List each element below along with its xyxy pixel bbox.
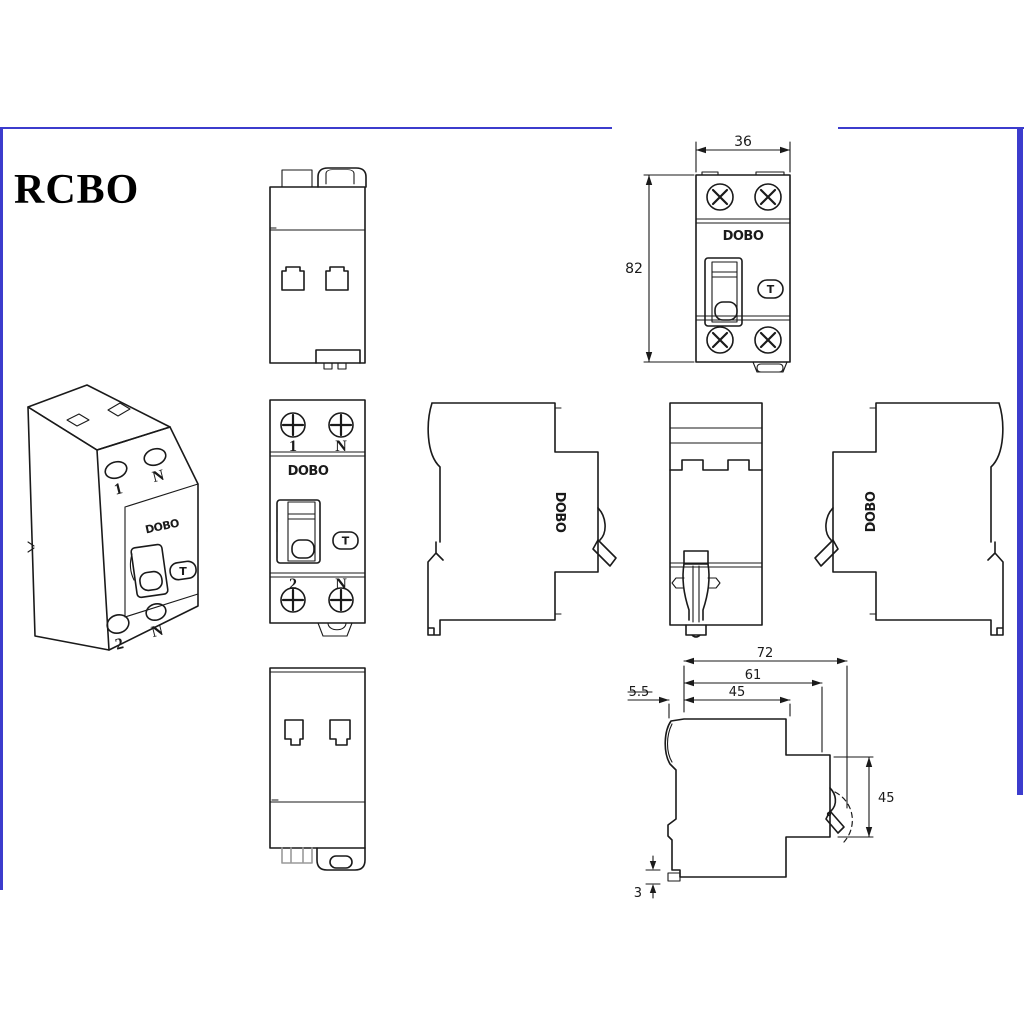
dim-body-depth: 61 — [745, 668, 762, 683]
side-profile — [428, 403, 598, 635]
test-button: T — [169, 560, 197, 580]
test-button: T — [333, 532, 358, 549]
mirrored-profile — [815, 403, 1003, 635]
din-tab-ghost — [282, 848, 312, 863]
bottom-clip — [318, 623, 352, 636]
rail-clip — [317, 848, 365, 870]
clip-foot — [668, 873, 680, 881]
dim-61-lines — [684, 683, 822, 752]
lower-terminal-face: 2 N — [105, 601, 168, 653]
housing-outline — [270, 668, 365, 848]
page-title: RCBO — [14, 166, 139, 214]
test-button-label: T — [767, 283, 775, 296]
terminal-label-1: 1 — [289, 438, 297, 455]
front-view: 1 N 2 N DOBO T — [264, 394, 376, 646]
rail-clip-feet — [324, 363, 346, 369]
test-button-label: T — [342, 535, 350, 548]
iso-label-1: 1 — [112, 480, 124, 498]
terminal-label-2: 2 — [289, 576, 297, 593]
dim-total-depth: 72 — [757, 646, 774, 661]
bottom-clip — [753, 362, 787, 372]
breaker-body — [696, 175, 790, 362]
terminal-hole-right — [326, 267, 348, 290]
front-edge-bulge — [598, 508, 605, 540]
screw-terminal — [707, 184, 781, 353]
toggle-switch — [130, 544, 168, 598]
brand-logo: DOBO — [288, 464, 329, 479]
terminal-label-n-bottom: N — [335, 576, 347, 593]
toggle-lever — [593, 540, 616, 566]
top-view-drawing — [264, 160, 376, 372]
iso-label-2: 2 — [113, 635, 125, 653]
dim-45-right-lines — [834, 757, 873, 837]
busbar-dome — [318, 168, 366, 187]
upper-terminal-face: 1 N — [103, 446, 168, 499]
rail-hook — [668, 724, 673, 762]
din-rail-clip — [672, 551, 720, 637]
iso-label-n-bottom: N — [150, 622, 166, 641]
side-profile — [665, 719, 830, 877]
brand-logo: DOBO — [723, 229, 764, 244]
brand-logo-rotated: DOBO — [864, 491, 879, 532]
test-button: T — [758, 280, 783, 298]
divider-line — [270, 228, 365, 230]
side-face — [28, 407, 109, 650]
side-view-right: DOBO — [806, 392, 1021, 648]
dim-rail-offset: 5.5 — [629, 685, 650, 700]
terminal-hole-right — [330, 720, 350, 745]
frame-border-top-left — [0, 127, 612, 129]
terminal-label-n-top: N — [335, 438, 347, 455]
rail-clip-slot — [316, 350, 360, 363]
dim-front-height: 45 — [878, 791, 895, 806]
brand-logo-rotated: DOBO — [552, 492, 567, 533]
lever-swing-arc — [835, 792, 852, 842]
side-view-left: DOBO — [410, 392, 625, 648]
brand-logo: DOBO — [144, 517, 180, 537]
frame-border-top-right — [838, 127, 1024, 129]
rear-view — [664, 396, 766, 650]
technical-drawing-sheet: RCBO 36 82 DOBO — [0, 0, 1024, 1024]
iso-label-n-top: N — [151, 467, 167, 486]
terminal-hole-left — [285, 720, 303, 745]
housing-outline — [270, 187, 365, 363]
top-face — [28, 385, 170, 450]
isometric-view: 1 N DOBO T 2 N — [12, 374, 242, 674]
toggle-lever — [826, 811, 844, 833]
terminal-hole-left — [282, 267, 304, 290]
top-hole-left — [67, 414, 89, 426]
busbar-cap — [326, 170, 354, 184]
din-tab — [282, 170, 312, 187]
dim-extension-lines-height — [644, 175, 694, 362]
frame-border-left — [0, 127, 3, 890]
front-view-dimensioned: 36 82 DOBO T — [620, 130, 820, 386]
dim-45-top-lines — [684, 700, 790, 716]
dim-front-height: 82 — [625, 261, 643, 277]
side-view-dimensioned: 72 61 45 5.5 45 3 — [598, 640, 908, 915]
bottom-view-drawing — [264, 654, 376, 878]
test-button-label: T — [179, 565, 187, 578]
divider-line — [270, 800, 365, 802]
dim-clip-extension: 3 — [634, 886, 642, 901]
front-edge-bulge — [830, 788, 835, 811]
toggle-switch — [277, 500, 320, 563]
stepped-profile — [670, 460, 762, 470]
upper-lines — [670, 428, 762, 443]
dim-front-depth: 45 — [729, 685, 746, 700]
dim-front-width: 36 — [734, 134, 752, 150]
